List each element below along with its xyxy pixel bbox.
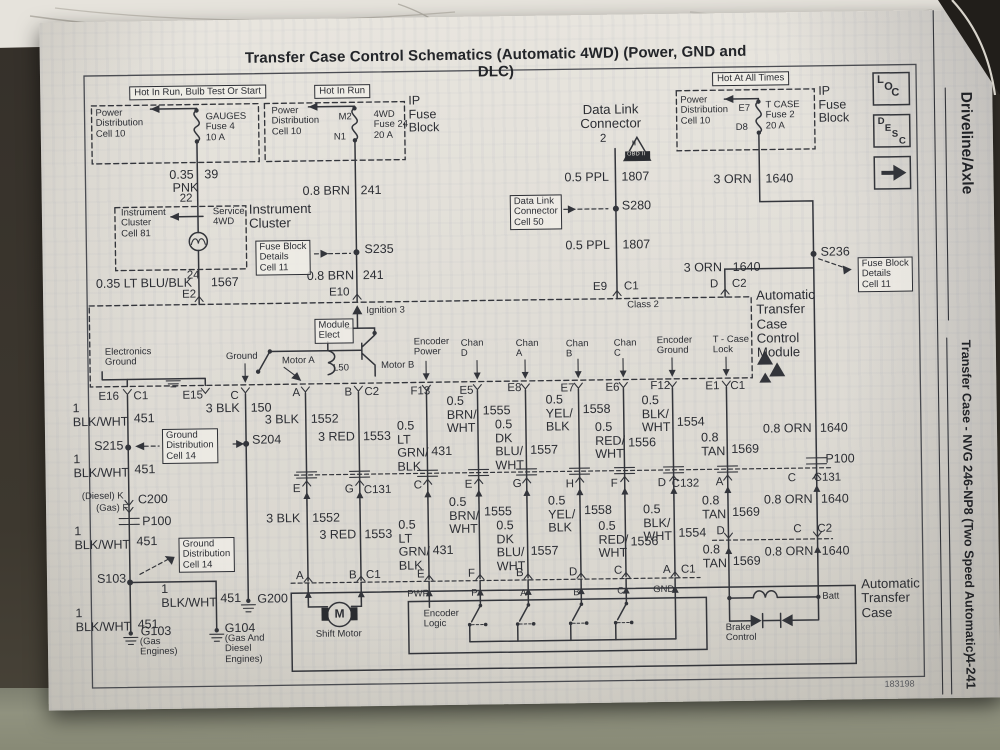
diagram-label: D	[658, 477, 666, 490]
diagram-label: 1640	[733, 261, 761, 275]
diagram-label: 3 ORN	[684, 261, 722, 275]
manual-page: Transfer Case Control Schematics (Automa…	[39, 9, 1000, 710]
diagram-label: 1640	[822, 544, 850, 558]
diagram-label: E	[465, 479, 473, 492]
diagram-label: C2	[732, 278, 747, 291]
diagram-label: M2	[339, 112, 352, 122]
diagram-label: C1	[730, 380, 745, 393]
diagram-label: 1 BLK/WHT	[75, 606, 131, 634]
diagram-label: IP Fuse Block	[408, 94, 439, 135]
diagram-label: 0.5 RED/ WHT	[595, 421, 625, 462]
diagram-label: C2	[364, 386, 379, 399]
diagram-label: B	[349, 569, 357, 582]
diagram-label: Ignition 3	[366, 306, 405, 317]
diagram-label: A	[296, 570, 304, 583]
diagram-label: 0.5 BLK/ WHT	[641, 394, 670, 435]
diagram-label: 1558	[584, 504, 612, 518]
diagram-label: Chan D	[461, 339, 484, 360]
diagram-label: 1553	[363, 430, 391, 444]
diagram-label: 39	[204, 168, 218, 182]
diagram-label: 0.8 ORN	[765, 545, 814, 559]
diagram-label: E7	[738, 104, 750, 114]
desc-tab: DESC	[874, 115, 910, 147]
diagram-label: E	[417, 568, 425, 581]
diagram-label: 1 BLK/WHT	[73, 452, 129, 480]
diagram-label: C	[414, 479, 422, 492]
diagram-label: Encoder Logic	[423, 609, 459, 630]
diagram-label: D	[716, 525, 724, 538]
diagram-label: C131	[364, 484, 392, 497]
diagram-label: 1558	[583, 403, 611, 417]
margin-subsection-title: Transfer Case - NVG 246-NP8 (Two Speed A…	[959, 340, 977, 657]
diagram-label: 1 BLK/WHT	[74, 524, 130, 552]
diagram-label: C	[788, 472, 796, 485]
diagram-label: Motor B	[381, 360, 414, 371]
diagram-label: C1	[624, 280, 639, 293]
diagram-label: C200	[138, 493, 168, 507]
diagram-label: F	[468, 568, 475, 581]
diagram-label: 1567	[211, 276, 239, 290]
diagram-label: H	[566, 478, 574, 491]
diagram-label: Instrument Cluster Cell 81	[121, 208, 166, 239]
diagram-label: Electronics Ground	[105, 347, 152, 368]
diagram-label: 451	[134, 463, 155, 477]
diagram-label: 0.5 PPL	[564, 171, 609, 185]
diagram-label: 1557	[531, 544, 559, 558]
diagram-label: E8	[507, 382, 521, 395]
diagram-label: 1 BLK/WHT	[161, 582, 217, 610]
diagram-label: 241	[363, 269, 384, 283]
diagram-label: Ground Distribution Cell 14	[178, 537, 234, 573]
diagram-label: 0.5 LT GRN/ BLK	[398, 518, 430, 572]
diagram-label: 1557	[530, 443, 558, 457]
diagram-label: Fuse Block Details Cell 11	[255, 240, 310, 276]
diagram-label: 451	[220, 592, 241, 606]
diagram-label: E2	[182, 289, 196, 302]
diagram-label: Ground Distribution Cell 14	[162, 428, 218, 464]
diagram-label: E15	[182, 389, 203, 402]
diagram-label: 0.5 BRN/ WHT	[446, 395, 476, 436]
diagram-label: 1554	[677, 415, 705, 429]
diagram-label: S204	[252, 433, 281, 447]
diagram-label: (Diesel) K	[82, 492, 124, 503]
diagram-label: E1	[705, 380, 719, 393]
diagram-label: M	[334, 607, 344, 620]
diagram-label: Hot In Run, Bulb Test Or Start	[129, 85, 266, 101]
diagram-label: 4WD Fuse 24 20 A	[373, 110, 408, 141]
diagram-label: 3 RED	[318, 430, 355, 444]
diagram-label: (Gas Engines)	[140, 637, 178, 658]
diagram-label: C	[793, 523, 801, 536]
diagram-label: E9	[593, 281, 607, 294]
diagram-label: Service 4WD	[213, 207, 245, 228]
diagram-label: PWR	[407, 589, 429, 600]
diagram-label: C132	[672, 478, 700, 491]
diagram-label: 0.8 BRN	[307, 269, 354, 283]
diagram-label: T CASE Fuse 2 20 A	[765, 100, 800, 131]
diagram-label: C2	[817, 523, 832, 536]
diagram-label: IP Fuse Block	[818, 84, 849, 125]
diagram-label: (Gas And Diesel Engines)	[225, 634, 265, 665]
diagram-label: 0.5 YEL/ BLK	[548, 494, 576, 535]
diagram-label: Instrument Cluster	[249, 202, 312, 231]
diagram-label: Shift Motor	[316, 629, 362, 640]
diagram-label: Fuse Block Details Cell 11	[858, 257, 913, 293]
diagram-label: 1807	[621, 170, 649, 184]
diagram-label: 0.8 BRN	[303, 184, 350, 198]
diagram-label: GND	[653, 585, 674, 596]
diagram-label: 0.8 TAN	[702, 494, 726, 521]
diagram-label: C	[614, 565, 622, 578]
diagram-label: Brake Control	[726, 623, 757, 644]
diagram-label: F12	[650, 380, 670, 393]
diagram-label: 3 BLK	[206, 402, 240, 416]
diagram-label: B	[516, 567, 524, 580]
diagram-label: 1555	[483, 404, 511, 418]
diagram-label: Class 2	[627, 300, 659, 311]
document-number: 183198	[884, 679, 914, 689]
diagram-label: 1552	[311, 413, 339, 427]
diagram-label: 3 BLK	[266, 512, 300, 526]
diagram-label: S103	[97, 573, 126, 587]
diagram-label: A	[520, 589, 526, 599]
diagram-label: A	[716, 476, 724, 489]
diagram-label: Encoder Power	[414, 337, 450, 358]
diagram-label: F	[611, 478, 618, 491]
diagram-label: 1569	[731, 443, 759, 457]
diagram-label: Hot At All Times	[712, 71, 789, 86]
diagram-label: 1556	[628, 436, 656, 450]
diagram-label: Chan A	[516, 339, 539, 360]
diagram-label: Data Link Connector Cell 50	[510, 194, 562, 229]
diagram-label: 1807	[622, 238, 650, 252]
diagram-label: C1	[133, 390, 148, 403]
diagram-label: Hot In Run	[314, 84, 370, 99]
diagram-label: P100	[142, 515, 171, 529]
diagram-label: 3 RED	[319, 528, 356, 542]
diagram-label: S235	[364, 243, 393, 257]
diagram-label: S280	[622, 199, 651, 213]
diagram-label: 0.5 PPL	[565, 239, 610, 253]
diagram-label: OBD II	[627, 152, 645, 158]
diagram-label: D	[710, 278, 718, 291]
diagram-label: 451	[134, 412, 155, 426]
diagram-label: D8	[736, 123, 748, 133]
diagram-label: P100	[825, 452, 854, 466]
diagram-label: 0.5 YEL/ BLK	[545, 393, 573, 434]
diagram-label: C1	[366, 569, 381, 582]
diagram-label: 1554	[678, 526, 706, 540]
diagram-label: Automatic Transfer Case	[861, 576, 920, 620]
margin-page-number: 4-241	[963, 656, 978, 689]
diagram-label: F13	[410, 385, 430, 398]
diagram-label: Encoder Ground	[657, 336, 693, 357]
diagram-label: 431	[431, 445, 452, 459]
diagram-label: L50	[333, 363, 349, 373]
diagram-label: 22	[180, 193, 193, 206]
diagram-label: Power Distribution Cell 10	[680, 95, 728, 126]
loc-tab: LOC	[873, 73, 909, 105]
diagram-label: 1640	[765, 172, 793, 186]
diagram-label: 0.5 BLK/ WHT	[643, 503, 672, 544]
diagram-label: E	[293, 483, 301, 496]
diagram-label: Module Elect	[314, 318, 354, 343]
diagram-label: GAUGES Fuse 4 10 A	[206, 112, 247, 143]
diagram-label: 0.5 BRN/ WHT	[449, 496, 479, 537]
diagram-label: P	[471, 589, 477, 599]
diagram-label: 241	[361, 184, 382, 198]
diagram-label: T - Case Lock	[713, 335, 750, 356]
diagram-label: B	[573, 588, 579, 598]
diagram-label: 1640	[821, 492, 849, 506]
page-title: Transfer Case Control Schematics (Automa…	[236, 43, 756, 84]
diagram-label: 1553	[364, 528, 392, 542]
diagram-label: 3 BLK	[265, 413, 299, 427]
diagram-label: 0.8 TAN	[701, 431, 725, 458]
diagram-label: 431	[433, 544, 454, 558]
diagram-label: E10	[329, 286, 350, 299]
diagram-label: II	[632, 140, 636, 148]
diagram-label: 3 ORN	[713, 173, 751, 187]
diagram-label: Chan B	[566, 339, 589, 360]
diagram-label: Power Distribution Cell 10	[95, 108, 143, 139]
diagram-label: Automatic Transfer Case Control Module	[756, 288, 816, 360]
diagram-label: 1569	[733, 555, 761, 569]
diagram-label: 0.8 ORN	[763, 422, 812, 436]
diagram-label: Ground	[226, 352, 258, 363]
diagram-label: Batt	[822, 592, 839, 602]
diagram-label: 2	[600, 133, 607, 145]
diagram-label: 451	[136, 535, 157, 549]
diagram-label: 1 BLK/WHT	[73, 401, 129, 429]
diagram-label: 0.8 ORN	[764, 493, 813, 507]
labels-layer: Transfer Case Control Schematics (Automa…	[39, 9, 1000, 710]
diagram-label: Motor A	[282, 356, 315, 367]
diagram-label: Power Distribution Cell 10	[271, 106, 319, 137]
photo-scene: Transfer Case Control Schematics (Automa…	[0, 0, 1000, 750]
diagram-label: Chan C	[614, 338, 637, 359]
diagram-label: 0.5 LT GRN/ BLK	[397, 419, 429, 473]
diagram-label: C	[617, 587, 624, 597]
diagram-label: E6	[605, 382, 619, 395]
diagram-label: S236	[820, 245, 849, 259]
diagram-label: G	[513, 478, 522, 491]
diagram-label: C1	[681, 564, 696, 577]
diagram-label: 0.5 RED/ WHT	[598, 520, 628, 561]
diagram-label: G200	[257, 592, 288, 606]
diagram-label: (Gas) F	[96, 503, 128, 514]
diagram-label: 0.8 TAN	[703, 543, 727, 570]
margin-section-title: Driveline/Axle	[956, 92, 975, 195]
diagram-label: C131	[814, 472, 842, 485]
diagram-label: B	[344, 386, 352, 399]
diagram-label: 1569	[732, 506, 760, 520]
diagram-label: 0.5 DK BLU/ WHT	[496, 519, 525, 573]
diagram-label: 1552	[312, 512, 340, 526]
diagram-label: G	[345, 483, 354, 496]
diagram-label: A	[663, 564, 671, 577]
diagram-label: 0.35 LT BLU/BLK	[96, 277, 192, 292]
diagram-label: 0.5 DK BLU/ WHT	[495, 418, 524, 472]
diagram-label: S215	[94, 440, 123, 454]
diagram-label: 1555	[484, 505, 512, 519]
diagram-label: A	[292, 387, 300, 400]
diagram-label: D	[569, 566, 577, 579]
diagram-label: 1640	[820, 421, 848, 435]
diagram-label: N1	[334, 132, 346, 142]
diagram-label: Data Link Connector	[579, 102, 641, 131]
